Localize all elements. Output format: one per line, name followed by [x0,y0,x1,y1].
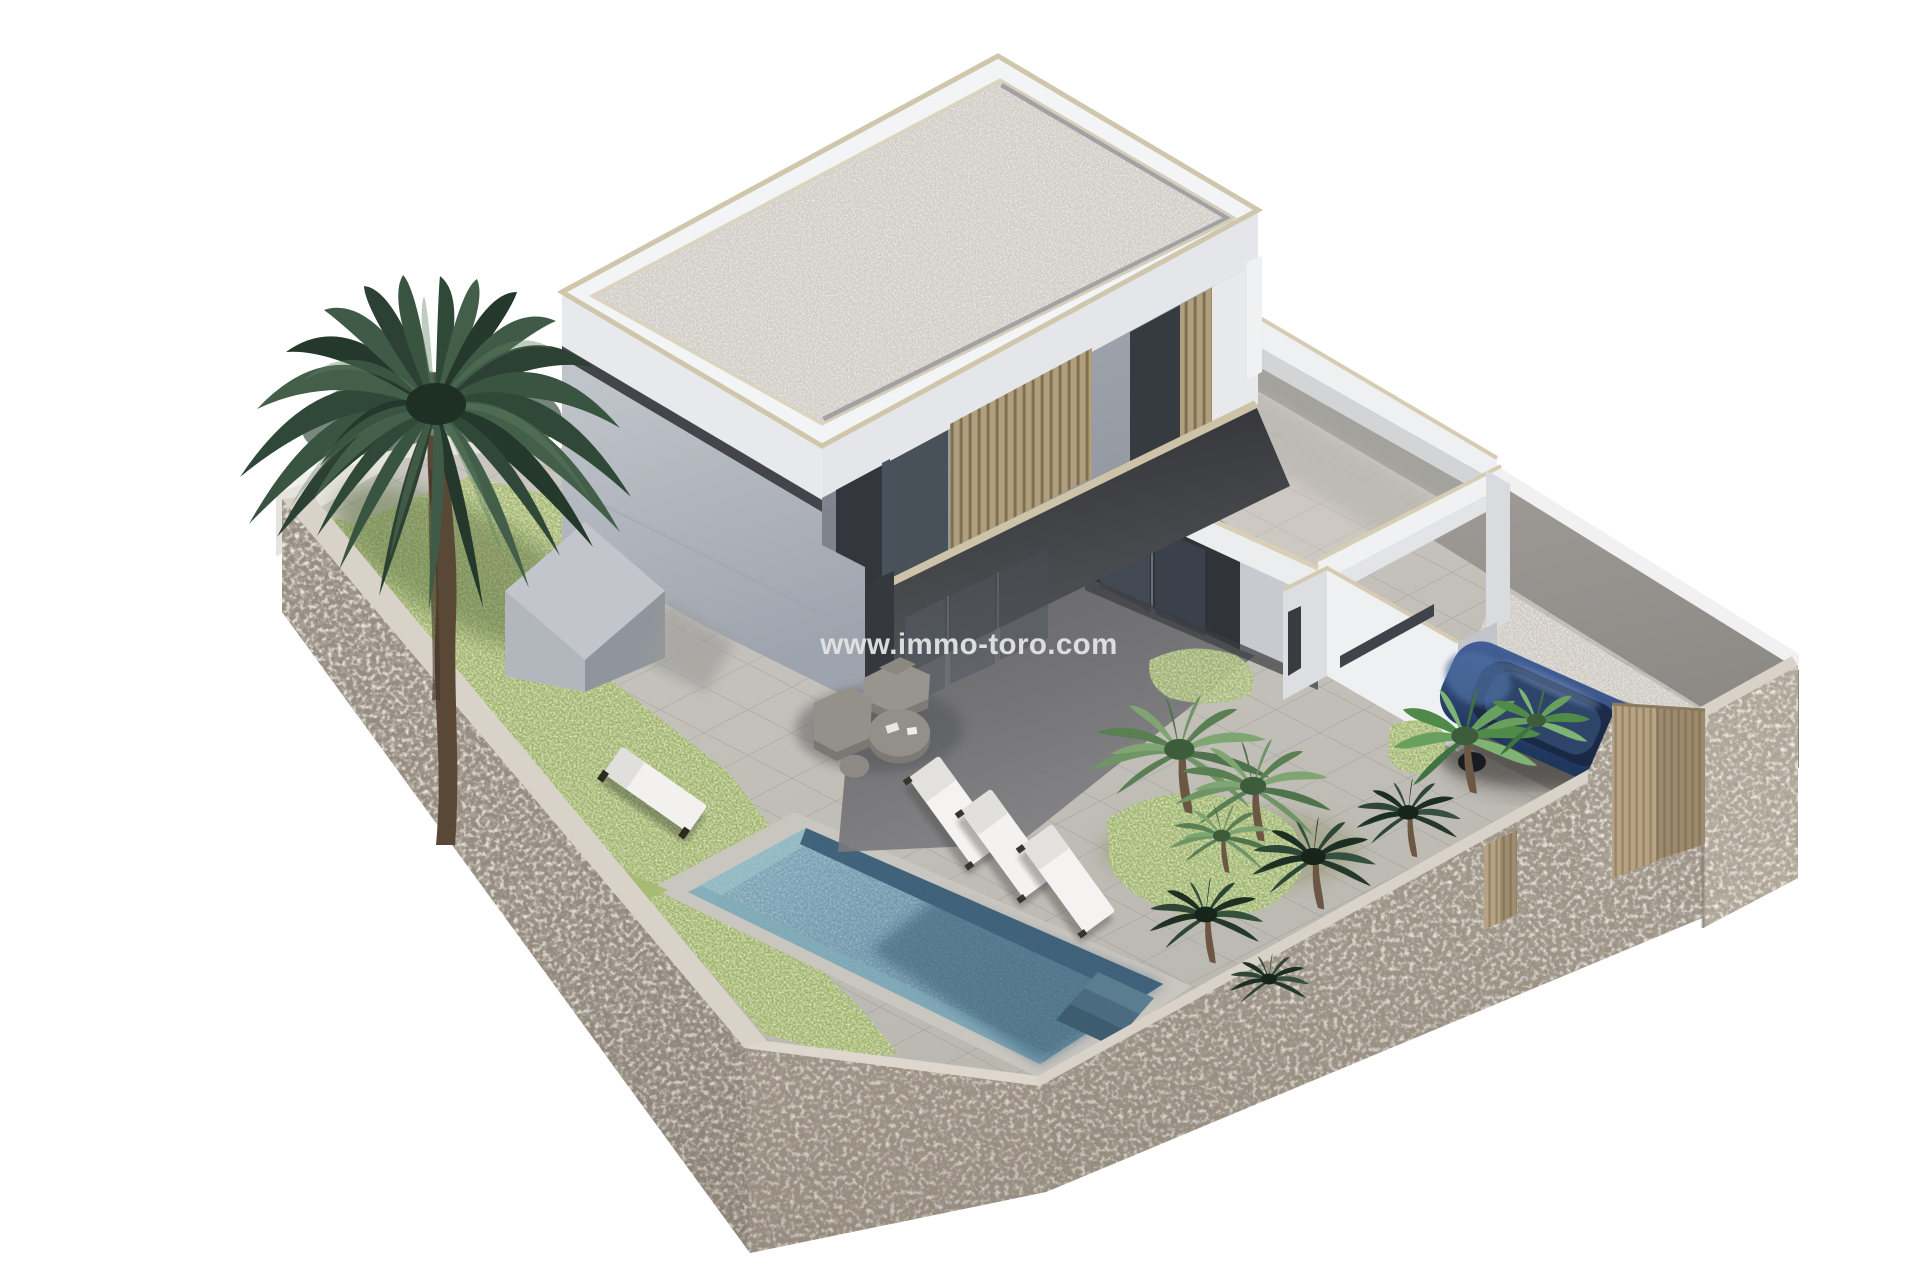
svg-text:www.immo-toro.com: www.immo-toro.com [819,628,1117,661]
